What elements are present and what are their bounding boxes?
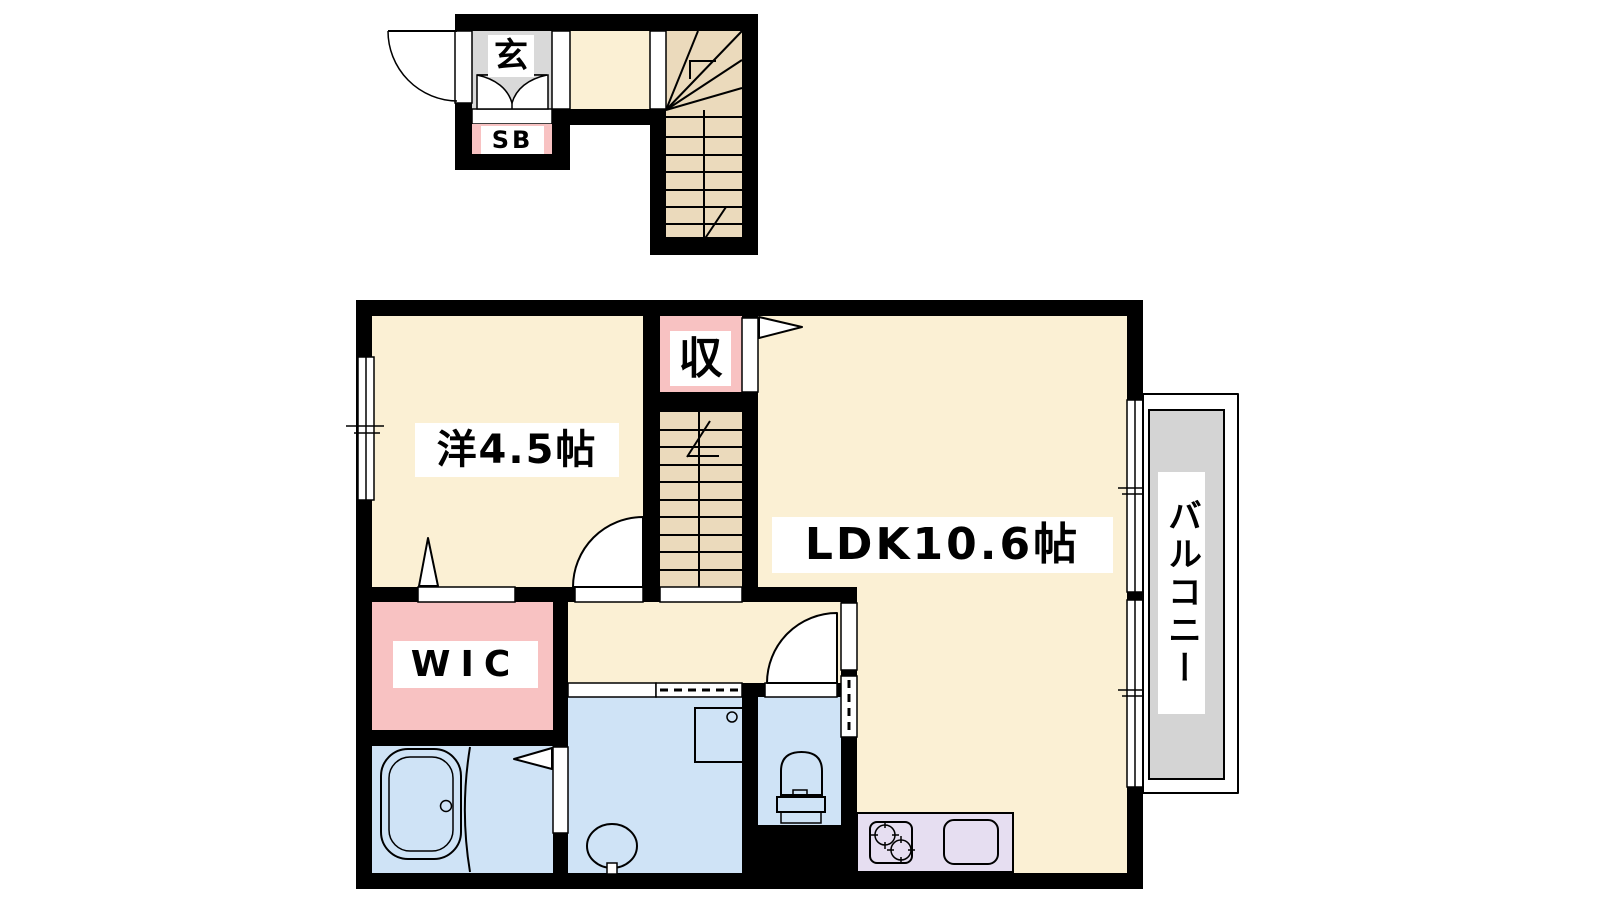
toilet-doorway: [765, 683, 837, 697]
entrance-step: [472, 109, 552, 124]
washroom-opening: [656, 683, 742, 697]
entrance-doorway: [455, 31, 472, 103]
western-doorway: [575, 587, 643, 602]
bath-doorway: [553, 747, 568, 833]
floor-plan: 玄 SB 洋4.5帖 収 LDK10.6帖 WIC バルコニー: [0, 0, 1600, 900]
room-bath: [372, 746, 553, 873]
hall-ldk-opening: [841, 603, 857, 670]
floor-plan-drawing: [0, 0, 1600, 900]
label-shoe-box: SB: [481, 126, 544, 154]
opening-entrance-hall: [552, 31, 570, 109]
room-entrance-hall: [570, 31, 650, 109]
main-floor: [346, 300, 1152, 889]
stairs-threshold: [660, 587, 742, 602]
room-washroom: [568, 697, 742, 873]
label-western-room: 洋4.5帖: [415, 423, 619, 477]
entrance-block: [388, 14, 758, 255]
washroom-doorway: [568, 683, 656, 697]
label-wic: WIC: [393, 641, 538, 688]
entrance-door-icon: [388, 31, 457, 101]
kitchen-counter: [857, 813, 1013, 872]
label-ldk: LDK10.6帖: [772, 517, 1113, 573]
label-balcony: バルコニー: [1158, 472, 1205, 714]
label-storage: 収: [670, 331, 731, 386]
entrance-fan-icon: [477, 75, 548, 109]
room-toilet: [758, 697, 841, 825]
opening-hall-stairs: [650, 31, 666, 109]
storage-doorway: [742, 318, 758, 392]
label-entrance: 玄: [488, 35, 534, 77]
wic-doorway: [418, 587, 515, 602]
